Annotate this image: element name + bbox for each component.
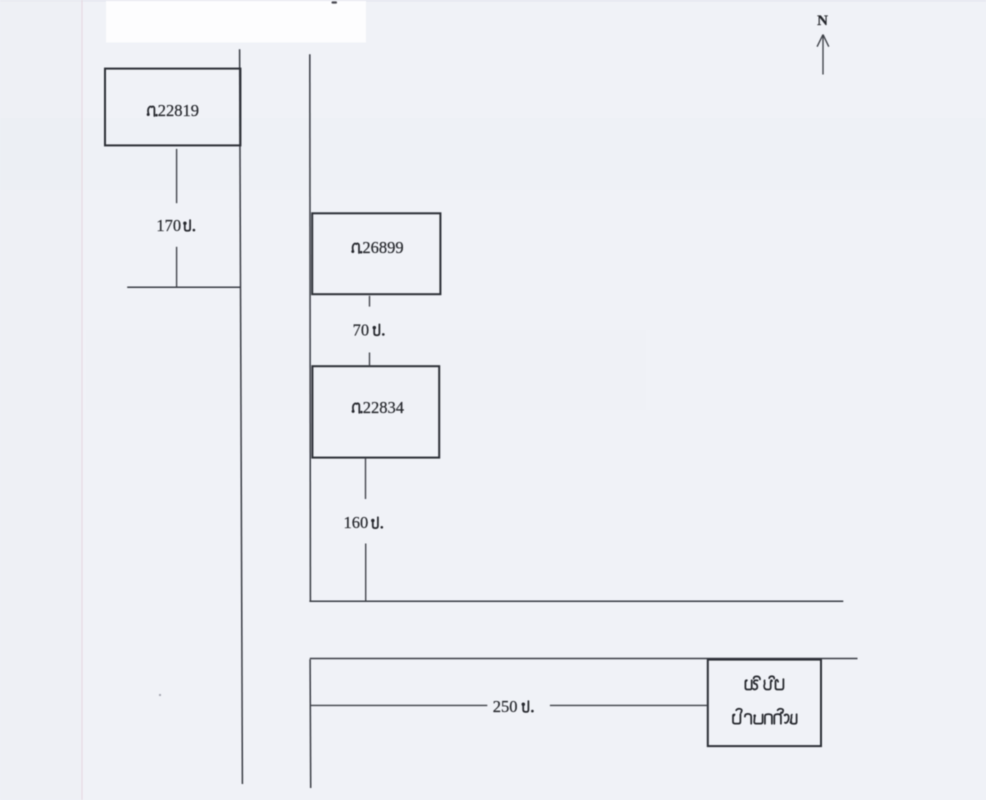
svg-text:70: 70 [353, 320, 370, 339]
svg-text:22834: 22834 [363, 398, 404, 417]
svg-text:N: N [817, 13, 828, 29]
svg-text:250: 250 [493, 697, 518, 716]
svg-text:26899: 26899 [362, 238, 403, 257]
svg-text:160: 160 [344, 513, 369, 532]
svg-text:170: 170 [156, 216, 181, 235]
svg-text:22819: 22819 [158, 101, 199, 120]
